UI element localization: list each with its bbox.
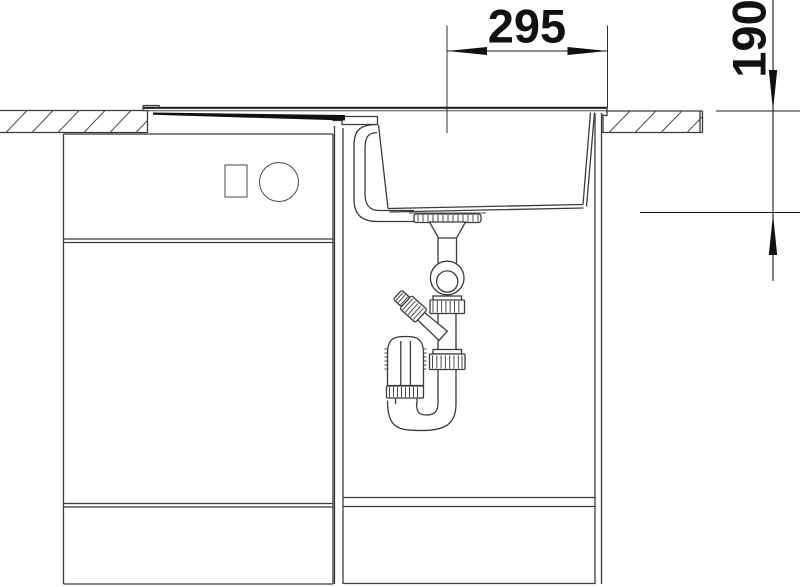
countertop-right-section	[602, 111, 703, 133]
drain-trap-assembly	[385, 213, 487, 431]
plinth	[343, 507, 595, 584]
union-nut-2	[430, 350, 466, 370]
sink-rim	[143, 106, 607, 121]
dimension-label-295: 295	[488, 0, 566, 53]
drawing-canvas: 295 190	[0, 0, 800, 587]
drawer-divider	[64, 239, 334, 243]
cabinet-sink-left-wall	[335, 126, 344, 584]
cabinet-sink-right-wall	[595, 113, 602, 584]
trap-u-bend	[388, 401, 457, 431]
plinth-divider	[64, 504, 334, 508]
union-nut-3	[387, 386, 424, 398]
cabinet-sink	[335, 113, 602, 584]
ball-joint	[430, 261, 464, 295]
sink-technical-drawing: 295 190	[0, 0, 800, 587]
countertop-left-section	[0, 111, 148, 133]
drainboard	[153, 113, 345, 121]
arrow-up-icon	[769, 215, 777, 256]
appliance-marker-circle	[260, 163, 299, 202]
hatch-right	[609, 111, 703, 133]
dimension-190: 190	[640, 0, 800, 281]
dimension-295: 295	[447, 0, 608, 133]
union-nut-1	[430, 296, 465, 314]
appliance-marker-rect	[225, 165, 247, 197]
hatch-left	[6, 111, 148, 133]
trap-left-arm	[396, 398, 418, 404]
reference-lines-190	[640, 111, 800, 213]
sink-basin	[333, 113, 595, 222]
trap-cup	[385, 336, 427, 385]
dimension-label-190: 190	[723, 0, 776, 78]
cabinet-left	[64, 134, 334, 584]
arrow-left-icon	[447, 47, 487, 55]
arrow-right-icon	[568, 47, 608, 55]
drain-taper	[430, 222, 466, 238]
